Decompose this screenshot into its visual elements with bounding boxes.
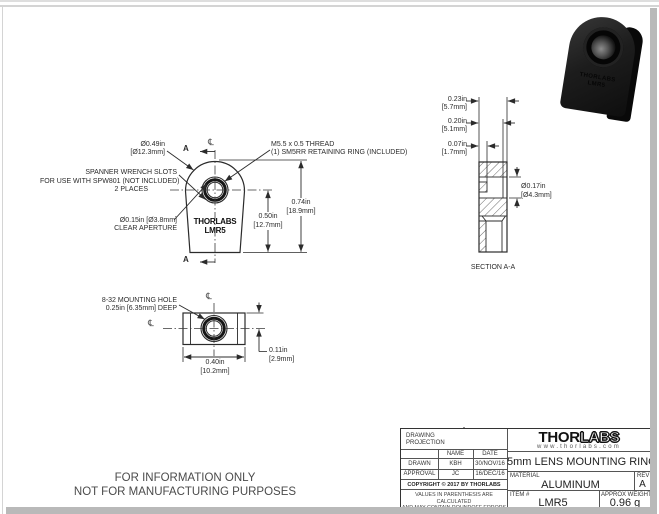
page-shadow-bottom	[6, 507, 650, 514]
dim-width: 0.40in [10.2mm]	[192, 358, 238, 376]
product-photo: THORLABS LMR5	[548, 9, 659, 129]
projection-label: DRAWING PROJECTION	[406, 433, 445, 447]
dim-bore-mm: [Ø4.3mm]	[521, 191, 552, 200]
dim-height-in: 0.74in	[279, 198, 323, 207]
footer-note: FOR INFORMATION ONLY NOT FOR MANUFACTURI…	[60, 472, 310, 499]
dim-width-in: 0.40in	[192, 358, 238, 367]
dim-section-d2: 0.20in [5.1mm]	[417, 118, 467, 134]
mounting-hole-callout: 8-32 MOUNTING HOLE 0.25in [6.35mm] DEEP	[92, 297, 177, 313]
diameter-callout: Ø0.49in [Ø12.3mm]	[95, 141, 165, 157]
approval-name: JC	[438, 471, 473, 478]
dim-section-d3: 0.07in [1.7mm]	[417, 141, 467, 157]
section-view-outline	[466, 97, 521, 252]
dim-offset-mm: [2.9mm]	[269, 355, 294, 364]
centerline-icon: ℄	[208, 138, 214, 147]
spanner-callout-line3: 2 PLACES	[40, 186, 177, 195]
dim-section-d1: 0.23in [5.7mm]	[417, 96, 467, 112]
thread-callout-line1: M5.5 x 0.5 THREAD	[271, 141, 407, 149]
page-edge-top	[0, 0, 659, 2]
thread-callout-line2: (1) SM5RR RETAINING RING (INCLUDED)	[271, 149, 407, 157]
aperture-callout-line2: CLEAR APERTURE	[60, 225, 177, 233]
material-value: ALUMINUM	[507, 479, 634, 491]
dim-offset: 0.11in [2.9mm]	[269, 346, 294, 364]
section-caption: SECTION A-A	[462, 264, 524, 272]
spanner-callout-line1: SPANNER WRENCH SLOTS	[40, 169, 177, 178]
centerline-icon: ℄	[148, 319, 154, 328]
product-bore-reflection	[590, 34, 617, 61]
mounting-hole-line2: 0.25in [6.35mm] DEEP	[92, 305, 177, 313]
thorlabs-logo: THORLABS	[507, 431, 651, 445]
part-engraving: THORLABS LMR5	[188, 218, 242, 235]
dim-d3-in: 0.07in	[417, 141, 467, 149]
title-block: DRAWING PROJECTION NAME DATE DRAWN KBH 3…	[400, 428, 652, 509]
approval-date: 16/DEC/16	[473, 471, 507, 478]
page-edge-top-inner	[0, 5, 659, 7]
dim-height-mm: [18.9mm]	[279, 207, 323, 216]
diameter-callout-in: Ø0.49in	[95, 141, 165, 149]
thread-callout: M5.5 x 0.5 THREAD (1) SM5RR RETAINING RI…	[271, 141, 407, 157]
dim-section-bore: Ø0.17in [Ø4.3mm]	[521, 182, 552, 200]
drawn-label: DRAWN	[401, 461, 438, 468]
approval-label: APPROVAL	[401, 471, 438, 478]
dim-d2-mm: [5.1mm]	[417, 126, 467, 134]
diameter-callout-mm: [Ø12.3mm]	[95, 149, 165, 157]
dim-d1-in: 0.23in	[417, 96, 467, 104]
section-mark-bottom: A	[183, 255, 189, 264]
footer-note-line2: NOT FOR MANUFACTURING PURPOSES	[60, 486, 310, 500]
page-edge-left	[2, 7, 3, 514]
section-mark-top: A	[183, 144, 189, 153]
spanner-callout-line2: FOR USE WITH SPW801 (NOT INCLUDED)	[40, 178, 177, 187]
spanner-callout: SPANNER WRENCH SLOTS FOR USE WITH SPW801…	[40, 169, 177, 195]
dim-d1-mm: [5.7mm]	[417, 104, 467, 112]
col-header-name: NAME	[438, 451, 473, 458]
dim-offset-in: 0.11in	[269, 346, 294, 355]
centerline-icon: ℄	[206, 292, 212, 301]
drawing-page: Ø0.49in [Ø12.3mm] M5.5 x 0.5 THREAD (1) …	[0, 0, 659, 514]
drawing-title: 5mm LENS MOUNTING RING	[507, 456, 651, 468]
part-engraving-model: LMR5	[188, 227, 242, 236]
dim-total-height: 0.74in [18.9mm]	[279, 198, 323, 216]
thorlabs-url: www.thorlabs.com	[507, 444, 651, 450]
aperture-callout: Ø0.15in [Ø3.8mm] CLEAR APERTURE	[60, 217, 177, 233]
dim-bore-in: Ø0.17in	[521, 182, 552, 191]
aperture-callout-line1: Ø0.15in [Ø3.8mm]	[60, 217, 177, 225]
copyright-note: COPYRIGHT © 2017 BY THORLABS	[401, 482, 507, 488]
dim-d2-in: 0.20in	[417, 118, 467, 126]
dim-d3-mm: [1.7mm]	[417, 149, 467, 157]
drawn-name: KBH	[438, 461, 473, 468]
bottom-view-outline	[163, 303, 267, 363]
page-shadow-right	[650, 8, 657, 514]
col-header-date: DATE	[473, 451, 507, 458]
drawn-date: 30/NOV/16	[473, 461, 507, 468]
mounting-hole-line1: 8-32 MOUNTING HOLE	[92, 297, 177, 305]
footer-note-line1: FOR INFORMATION ONLY	[60, 472, 310, 486]
rev-value: A	[634, 479, 651, 490]
dim-width-mm: [10.2mm]	[192, 367, 238, 376]
dim-center-mm: [12.7mm]	[246, 221, 290, 230]
